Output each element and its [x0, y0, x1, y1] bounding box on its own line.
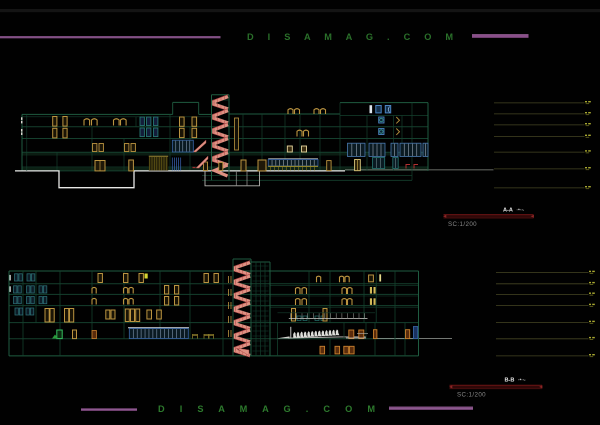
svg-text:SC:1/200: SC:1/200: [448, 221, 477, 228]
svg-text:SC:1/200: SC:1/200: [457, 392, 486, 399]
svg-text:·*·~: ·*·~: [517, 208, 525, 213]
svg-text:B-B: B-B: [505, 378, 515, 384]
svg-text:A-A: A-A: [503, 208, 513, 214]
svg-text:·*·~: ·*·~: [518, 378, 526, 383]
